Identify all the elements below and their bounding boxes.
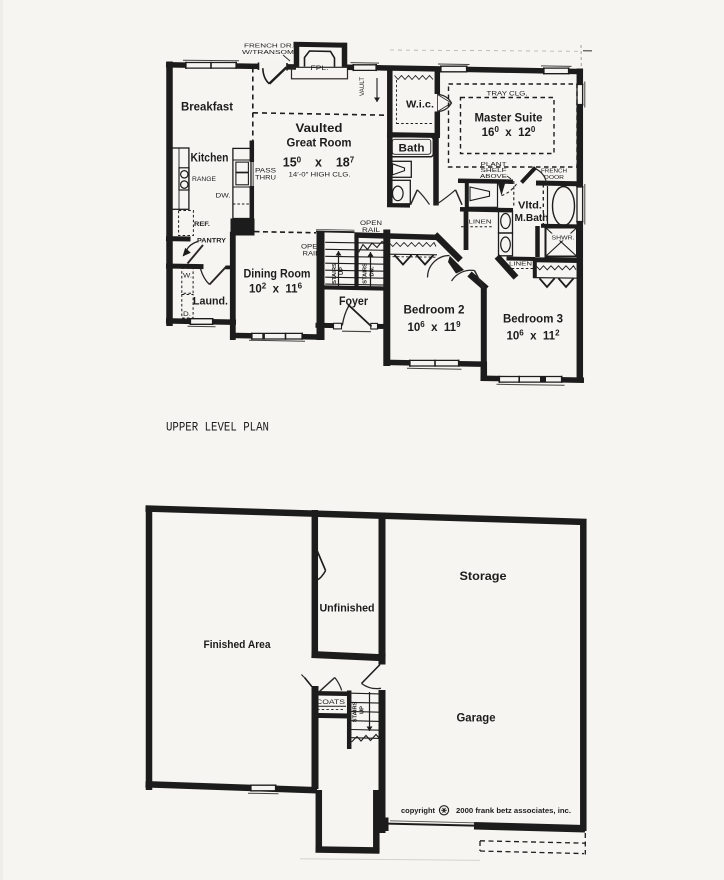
svg-text:STAIRS: STAIRS [363,263,369,284]
svg-text:Laund.: Laund. [193,296,228,308]
svg-text:W.i.c.: W.i.c. [406,99,434,111]
svg-text:W.: W. [183,274,192,280]
svg-text:VAULT: VAULT [359,77,366,96]
svg-text:FRENCH DR.: FRENCH DR. [244,44,295,50]
svg-text:RANGE: RANGE [192,176,216,183]
svg-text:PASS: PASS [255,167,276,174]
svg-text:2000 frank betz associates, in: 2000 frank betz associates, inc. [456,806,571,815]
svg-text:DW.: DW. [216,193,231,200]
svg-text:STAIRS: STAIRS [353,701,359,722]
svg-text:COATS: COATS [316,699,345,706]
svg-text:Vaulted: Vaulted [296,121,343,135]
svg-text:D.: D. [183,312,191,318]
svg-text:Master Suite: Master Suite [475,111,543,125]
svg-text:UP: UP [360,706,366,714]
svg-text:DN.: DN. [370,266,376,276]
svg-text:Unfinished: Unfinished [320,603,375,615]
svg-text:LINEN: LINEN [509,262,532,268]
svg-text:copyright: copyright [401,806,436,815]
svg-text:W/TRANSOM: W/TRANSOM [242,50,294,56]
svg-text:106 x 112: 106 x 112 [506,329,560,343]
svg-text:106 x 119: 106 x 119 [407,320,461,334]
svg-text:TRAY CLG.: TRAY CLG. [487,91,528,98]
svg-text:102 x 116: 102 x 116 [249,282,303,296]
svg-text:Garage: Garage [457,711,496,725]
svg-text:150 x 187: 150 x 187 [283,156,355,170]
svg-text:14′-0″ HIGH CLG.: 14′-0″ HIGH CLG. [289,172,351,179]
svg-text:FPL.: FPL. [311,65,329,72]
svg-text:STAIRS: STAIRS [332,263,338,284]
svg-text:Breakfast: Breakfast [181,100,233,114]
svg-text:UP: UP [339,267,345,275]
svg-text:Bedroom 2: Bedroom 2 [404,303,465,317]
svg-text:Finished Area: Finished Area [204,639,272,651]
svg-text:Bath: Bath [399,143,425,155]
svg-text:Dining Room: Dining Room [244,267,311,281]
svg-text:M.Bath: M.Bath [515,212,549,224]
svg-text:SHWR.: SHWR. [552,236,575,242]
svg-text:Storage: Storage [460,569,507,583]
svg-text:UPPER LEVEL PLAN: UPPER LEVEL PLAN [166,420,269,435]
svg-text:Great Room: Great Room [287,136,352,150]
svg-text:Vltd.: Vltd. [518,200,542,212]
svg-text:ABOVE: ABOVE [480,174,507,180]
svg-text:THRU: THRU [255,174,276,181]
svg-text:LINEN: LINEN [469,220,492,226]
svg-text:DOOR: DOOR [544,175,564,181]
svg-text:Bedroom 3: Bedroom 3 [503,312,563,326]
svg-text:RAIL.: RAIL. [303,250,322,257]
svg-text:REF.: REF. [194,221,210,228]
svg-text:Kitchen: Kitchen [191,151,229,165]
svg-text:PANTRY: PANTRY [197,238,227,245]
svg-text:Foyer: Foyer [339,296,368,308]
svg-text:FRENCH: FRENCH [541,169,567,175]
svg-text:160 x 120: 160 x 120 [482,125,536,139]
